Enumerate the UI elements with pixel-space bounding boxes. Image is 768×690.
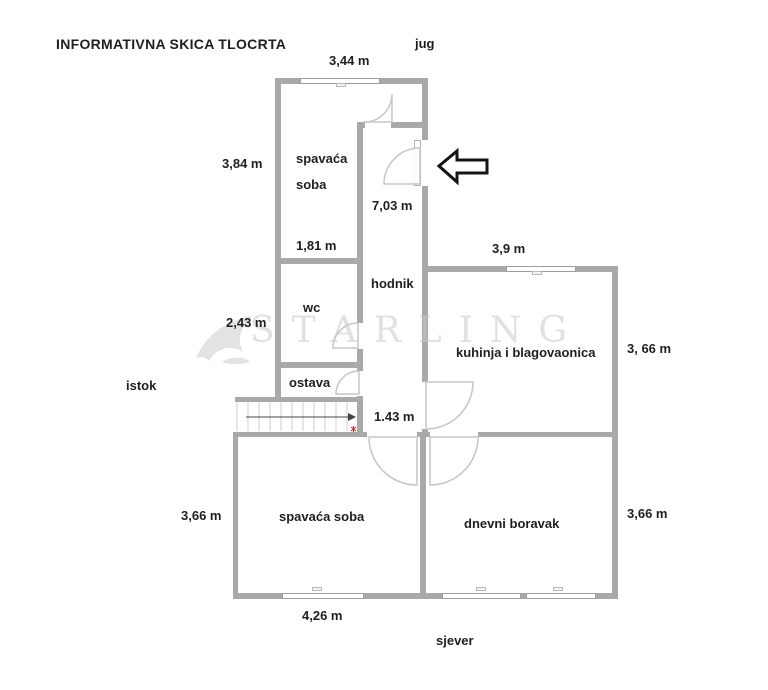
wall-middle-left	[233, 432, 367, 437]
window-living-2	[526, 593, 596, 599]
compass-east-label: istok	[126, 378, 156, 394]
wall-middle-right	[478, 432, 618, 437]
dim-kitchen-height: 3, 66 m	[627, 341, 671, 357]
room-label-kitchen: kuhinja i blagovaonica	[456, 345, 595, 361]
entrance-door-leaf	[414, 140, 421, 186]
wall-left-upper	[275, 78, 281, 402]
window-tick	[476, 587, 486, 591]
window-tick	[336, 83, 346, 87]
dim-living-room-height: 3,66 m	[627, 506, 667, 522]
room-label-bedroom-bottom: spavaća soba	[279, 509, 364, 525]
wall-right-upper	[422, 78, 428, 140]
dim-wc-height: 2,43 m	[226, 315, 266, 331]
dim-top-width: 3,44 m	[329, 53, 369, 69]
dim-hallway-width: 1.43 m	[374, 409, 414, 425]
door-arc-kitchen	[426, 382, 473, 429]
dim-bedroom-bottom-width: 4,26 m	[302, 608, 342, 624]
stairs-direction-arrow	[246, 413, 356, 421]
dim-kitchen-width: 3,9 m	[492, 241, 525, 257]
room-label-bedroom-top: spavaća soba	[296, 146, 360, 198]
dim-bedroom-bottom-height: 3,66 m	[181, 508, 221, 524]
entrance-arrow-icon	[439, 151, 487, 182]
room-label-pantry: ostava	[289, 375, 330, 391]
door-arc-pantry	[336, 371, 359, 394]
dim-bedroom-top-width: 1,81 m	[296, 238, 336, 254]
dim-bedroom-top-height: 3,84 m	[222, 156, 262, 172]
door-arc-bedroom-top	[364, 94, 392, 122]
floor-plan: INFORMATIVNA SKICA TLOCRTA jug istok sje…	[0, 0, 768, 690]
window-living-1	[442, 593, 521, 599]
wall-stairs-top	[235, 397, 363, 402]
window-tick	[553, 587, 563, 591]
room-label-living-room: dnevni boravak	[464, 516, 559, 532]
wall-wc-pantry-divider	[275, 362, 363, 368]
wall-right-middle	[422, 186, 428, 382]
compass-south-label: jug	[415, 36, 435, 52]
window-tick	[532, 271, 542, 275]
room-label-wc: wc	[303, 300, 320, 316]
window-tick	[312, 587, 322, 591]
dim-hallway-length: 7,03 m	[372, 198, 412, 214]
wall-bedroom-living-divider	[420, 437, 426, 593]
window-bedroom-bottom	[282, 593, 364, 599]
room-label-hallway: hodnik	[371, 276, 414, 292]
wall-bedroom-wc-divider	[275, 258, 363, 264]
wall-hallway-top	[391, 122, 428, 128]
door-arc-living-room	[430, 437, 478, 485]
page-title: INFORMATIVNA SKICA TLOCRTA	[56, 36, 286, 52]
stairs	[237, 402, 347, 431]
door-arc-bedroom-bottom	[369, 437, 417, 485]
compass-north-label: sjever	[436, 633, 474, 649]
wall-left-lower	[233, 432, 238, 599]
